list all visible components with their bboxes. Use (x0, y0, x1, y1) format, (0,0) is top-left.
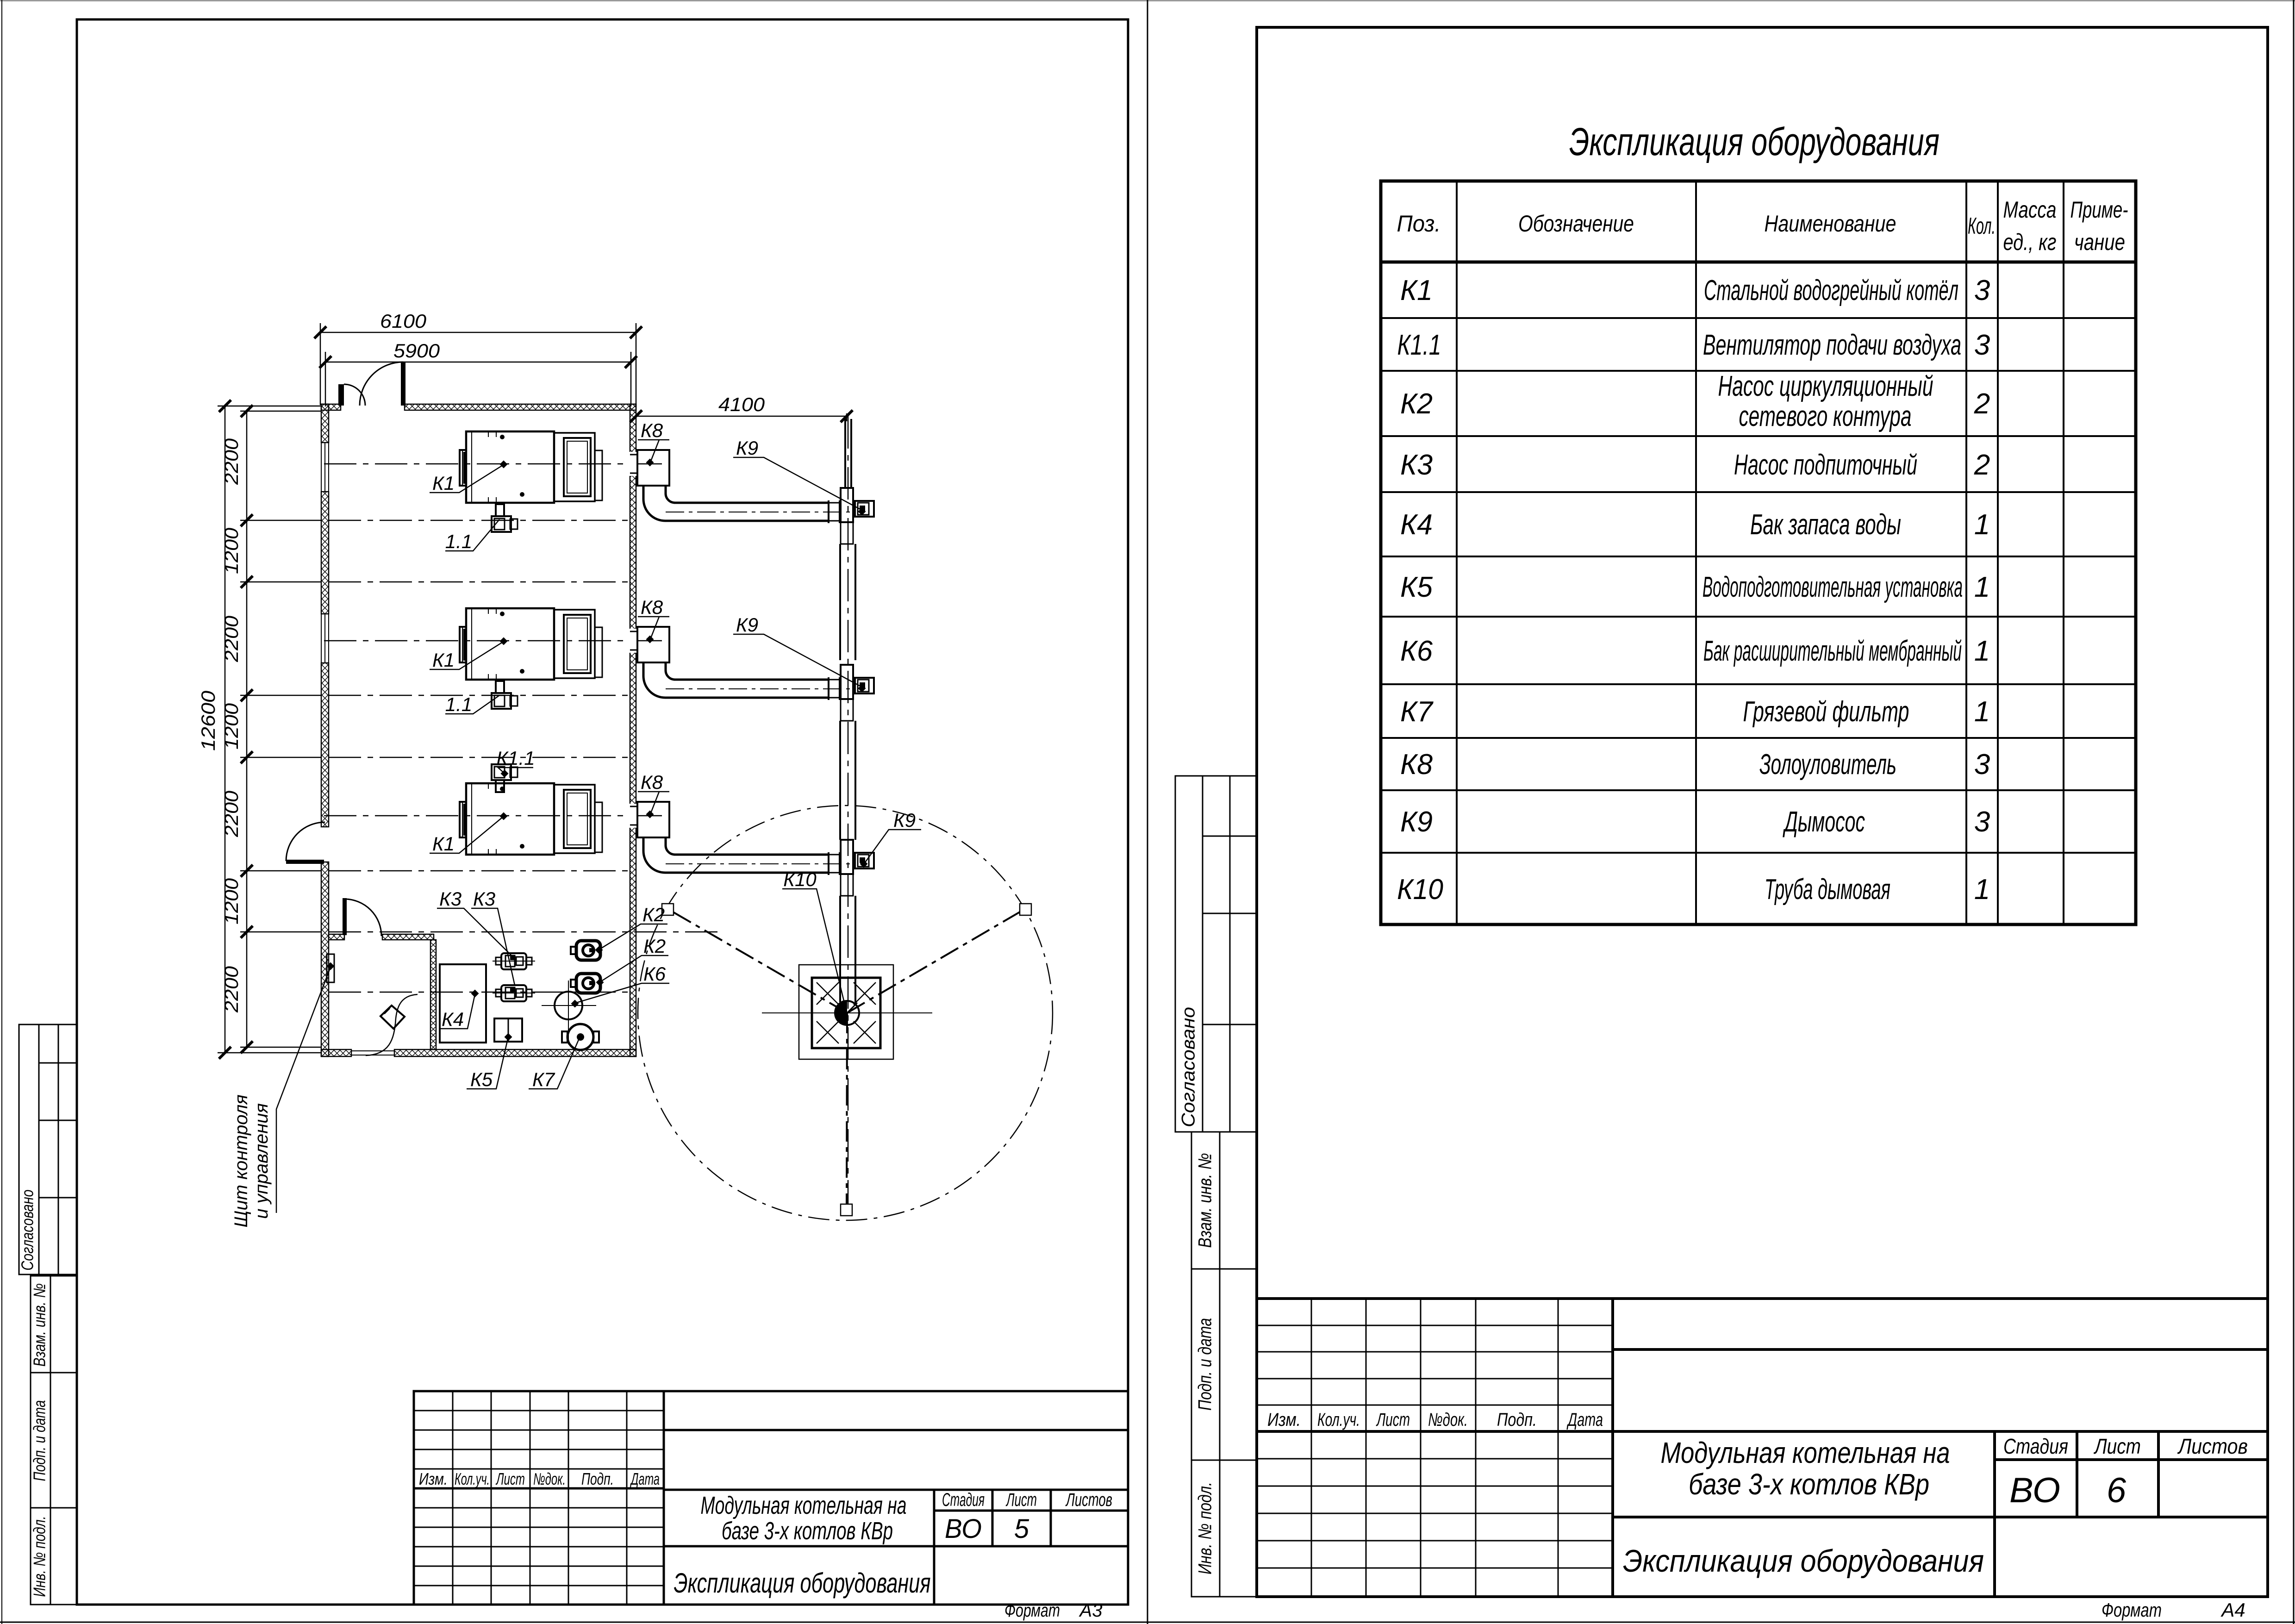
svg-text:1.1: 1.1 (445, 693, 472, 715)
svg-text:К1: К1 (432, 649, 455, 671)
svg-text:К1.1: К1.1 (1397, 329, 1441, 361)
svg-text:Наименование: Наименование (1765, 211, 1896, 237)
svg-text:2200: 2200 (220, 438, 242, 485)
svg-text:№док.: №док. (533, 1469, 566, 1488)
svg-text:Стадия: Стадия (942, 1490, 985, 1510)
svg-text:Поз.: Поз. (1397, 211, 1441, 237)
svg-text:Масса: Масса (2003, 197, 2057, 223)
svg-text:К3: К3 (473, 888, 495, 910)
svg-text:К7: К7 (1400, 696, 1434, 728)
svg-text:Труба дымовая: Труба дымовая (1765, 874, 1890, 906)
svg-text:А3: А3 (1079, 1600, 1103, 1621)
svg-text:Щит контроля: Щит контроля (231, 1094, 251, 1227)
svg-text:6100: 6100 (380, 310, 427, 332)
svg-text:Кол.уч.: Кол.уч. (1317, 1410, 1360, 1430)
svg-text:Модульная котельная на: Модульная котельная на (1661, 1436, 1950, 1469)
svg-text:Лист: Лист (1005, 1490, 1037, 1510)
svg-text:Листов: Листов (2177, 1434, 2248, 1458)
svg-text:Бак запаса воды: Бак запаса воды (1750, 509, 1901, 541)
svg-text:5: 5 (1014, 1514, 1029, 1544)
svg-text:2200: 2200 (220, 615, 242, 662)
svg-text:К3: К3 (1400, 449, 1433, 481)
svg-text:Подп.: Подп. (581, 1469, 614, 1488)
svg-text:Насос подпиточный: Насос подпиточный (1734, 449, 1917, 481)
svg-text:К6: К6 (643, 963, 666, 985)
svg-text:К9: К9 (893, 809, 916, 831)
svg-text:2200: 2200 (220, 790, 242, 837)
svg-text:Формат: Формат (1004, 1600, 1060, 1621)
svg-text:К9: К9 (1400, 806, 1433, 838)
svg-text:К6: К6 (1400, 635, 1433, 667)
svg-text:Кол.уч.: Кол.уч. (455, 1469, 490, 1488)
svg-text:Дата: Дата (630, 1469, 660, 1488)
svg-text:Дымосос: Дымосос (1783, 806, 1865, 838)
svg-text:К1: К1 (432, 472, 455, 494)
svg-text:Грязевой фильтр: Грязевой фильтр (1743, 696, 1909, 728)
svg-text:К8: К8 (641, 596, 663, 618)
svg-text:Согласовано: Согласовано (18, 1190, 37, 1271)
svg-text:1200: 1200 (220, 527, 242, 574)
svg-text:Формат: Формат (2102, 1599, 2162, 1621)
svg-text:4100: 4100 (718, 394, 765, 415)
svg-text:К2: К2 (643, 935, 666, 957)
svg-text:Взам. инв. №: Взам. инв. № (30, 1283, 49, 1367)
svg-text:5900: 5900 (393, 340, 440, 362)
svg-text:ед., кг: ед., кг (2003, 229, 2057, 255)
svg-text:1: 1 (1974, 509, 1990, 541)
svg-text:Модульная котельная на: Модульная котельная на (701, 1492, 907, 1519)
svg-text:Водоподготовительная установка: Водоподготовительная установка (1703, 571, 1963, 603)
svg-text:Согласовано: Согласовано (1179, 1007, 1199, 1127)
svg-text:Экспликация оборудования: Экспликация оборудования (1569, 120, 1940, 163)
svg-text:Лист: Лист (2093, 1434, 2141, 1458)
svg-text:чание: чание (2074, 229, 2125, 255)
svg-text:Приме-: Приме- (2070, 197, 2128, 223)
svg-text:Насос циркуляционный: Насос циркуляционный (1718, 370, 1933, 402)
svg-text:К1: К1 (1400, 275, 1433, 306)
svg-text:К1.1: К1.1 (496, 747, 535, 769)
svg-text:Листов: Листов (1065, 1490, 1112, 1510)
svg-text:12600: 12600 (197, 690, 219, 751)
svg-text:К10: К10 (783, 868, 817, 890)
svg-text:Бак расширительный мембранный: Бак расширительный мембранный (1703, 635, 1962, 667)
svg-text:Вентилятор подачи воздуха: Вентилятор подачи воздуха (1703, 329, 1961, 361)
svg-text:3: 3 (1974, 749, 1990, 781)
svg-text:1: 1 (1974, 874, 1990, 906)
svg-text:К5: К5 (1400, 571, 1433, 603)
svg-text:Кол.: Кол. (1968, 213, 1996, 239)
svg-text:Обозначение: Обозначение (1518, 211, 1634, 237)
svg-text:К7: К7 (532, 1068, 555, 1090)
svg-text:1: 1 (1974, 571, 1990, 603)
svg-text:1: 1 (1974, 635, 1990, 667)
svg-text:1200: 1200 (220, 703, 242, 750)
svg-text:Взам. инв. №: Взам. инв. № (1195, 1153, 1216, 1248)
svg-text:К10: К10 (1397, 874, 1443, 906)
svg-text:К2: К2 (1400, 388, 1433, 420)
svg-text:К3: К3 (439, 888, 461, 910)
svg-text:1: 1 (1974, 696, 1990, 728)
svg-text:3: 3 (1974, 275, 1990, 306)
svg-text:ВО: ВО (945, 1514, 982, 1544)
svg-text:сетевого контура: сетевого контура (1739, 400, 1912, 432)
svg-text:А4: А4 (2220, 1599, 2245, 1621)
svg-text:и управления: и управления (251, 1103, 272, 1219)
svg-text:базе 3-х котлов КВр: базе 3-х котлов КВр (1689, 1468, 1929, 1501)
svg-text:Лист: Лист (496, 1469, 525, 1488)
svg-text:Стадия: Стадия (2003, 1434, 2068, 1458)
svg-text:К4: К4 (1400, 509, 1433, 541)
svg-text:2: 2 (1974, 388, 1990, 420)
svg-text:2200: 2200 (220, 966, 242, 1013)
svg-text:К5: К5 (470, 1068, 493, 1090)
svg-text:№док.: №док. (1428, 1410, 1468, 1430)
svg-text:Золоуловитель: Золоуловитель (1759, 749, 1896, 781)
svg-text:Подп. и дата: Подп. и дата (1195, 1318, 1216, 1411)
svg-text:Лист: Лист (1376, 1410, 1410, 1430)
svg-text:1200: 1200 (220, 878, 242, 924)
svg-text:Дата: Дата (1566, 1410, 1603, 1430)
svg-text:К9: К9 (736, 437, 758, 459)
svg-text:Экспликация оборудования: Экспликация оборудования (674, 1568, 931, 1599)
svg-text:К8: К8 (641, 771, 663, 793)
svg-text:Стальной водогрейный котёл: Стальной водогрейный котёл (1704, 275, 1958, 306)
svg-text:3: 3 (1974, 329, 1990, 361)
svg-text:Инв. № подл.: Инв. № подл. (30, 1516, 49, 1597)
svg-text:К4: К4 (442, 1008, 464, 1030)
svg-text:2: 2 (1974, 449, 1990, 481)
svg-text:Экспликация оборудования: Экспликация оборудования (1623, 1543, 1984, 1579)
svg-text:К8: К8 (1400, 749, 1433, 781)
svg-text:3: 3 (1974, 806, 1990, 838)
svg-text:Изм.: Изм. (1267, 1410, 1301, 1430)
svg-text:К2: К2 (642, 904, 665, 925)
svg-text:Инв. № подл.: Инв. № подл. (1195, 1482, 1216, 1574)
svg-text:Подп.: Подп. (1497, 1410, 1537, 1430)
svg-text:Изм.: Изм. (419, 1469, 448, 1488)
svg-text:базе 3-х котлов КВр: базе 3-х котлов КВр (722, 1517, 893, 1545)
svg-text:ВО: ВО (2009, 1471, 2060, 1510)
svg-text:К9: К9 (736, 614, 758, 636)
svg-text:6: 6 (2107, 1471, 2127, 1510)
svg-text:К1: К1 (432, 833, 455, 855)
svg-text:К8: К8 (641, 419, 663, 441)
svg-text:Подп. и дата: Подп. и дата (30, 1400, 49, 1481)
svg-text:1.1: 1.1 (445, 531, 472, 552)
